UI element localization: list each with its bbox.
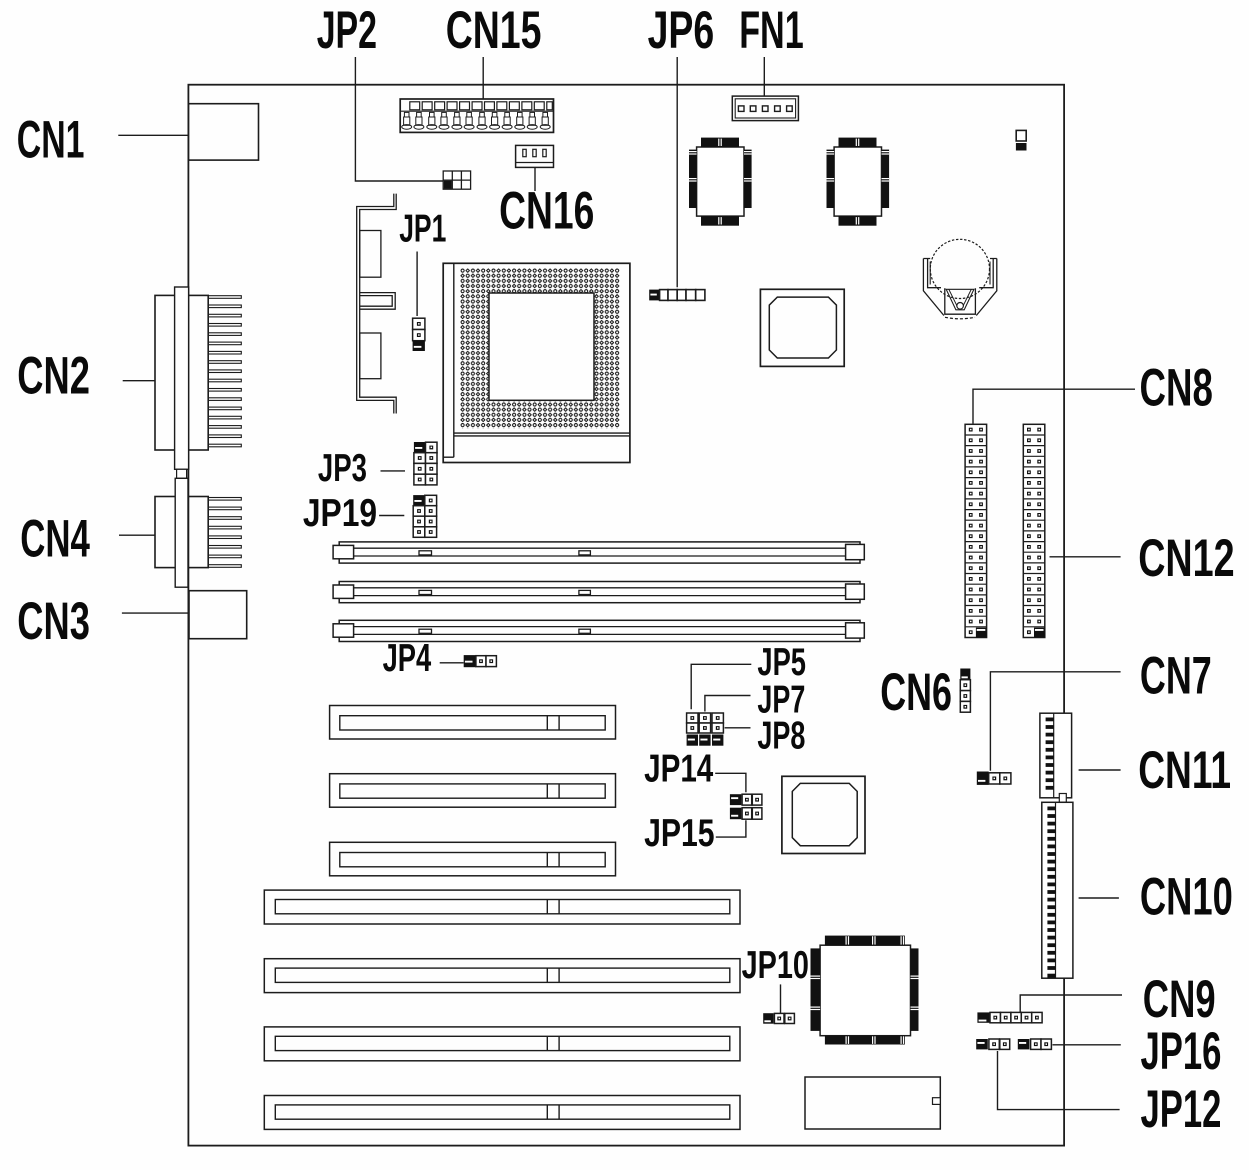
svg-text:JP1: JP1	[399, 208, 446, 251]
svg-text:CN16: CN16	[499, 181, 594, 240]
svg-text:JP16: JP16	[1141, 1022, 1222, 1081]
svg-text:JP6: JP6	[648, 1, 715, 60]
svg-text:JP19: JP19	[303, 492, 377, 535]
svg-text:JP4: JP4	[383, 637, 432, 680]
svg-text:CN2: CN2	[17, 347, 90, 406]
svg-text:CN6: CN6	[880, 663, 952, 722]
svg-text:CN3: CN3	[17, 592, 90, 651]
svg-text:JP8: JP8	[757, 715, 805, 758]
svg-text:FN1: FN1	[739, 1, 804, 60]
svg-text:CN7: CN7	[1140, 647, 1212, 706]
svg-text:CN15: CN15	[446, 1, 542, 60]
svg-text:JP14: JP14	[644, 748, 714, 791]
svg-text:JP15: JP15	[644, 812, 715, 855]
svg-text:CN8: CN8	[1140, 359, 1213, 418]
svg-text:CN4: CN4	[20, 510, 90, 569]
svg-text:JP10: JP10	[742, 944, 809, 987]
svg-text:JP2: JP2	[317, 1, 377, 60]
svg-text:CN1: CN1	[17, 110, 85, 169]
svg-text:JP12: JP12	[1141, 1080, 1222, 1139]
svg-text:CN10: CN10	[1140, 868, 1233, 927]
svg-text:JP3: JP3	[318, 447, 367, 490]
svg-text:CN9: CN9	[1143, 970, 1216, 1029]
svg-text:CN12: CN12	[1138, 529, 1234, 588]
svg-text:CN11: CN11	[1138, 741, 1231, 800]
